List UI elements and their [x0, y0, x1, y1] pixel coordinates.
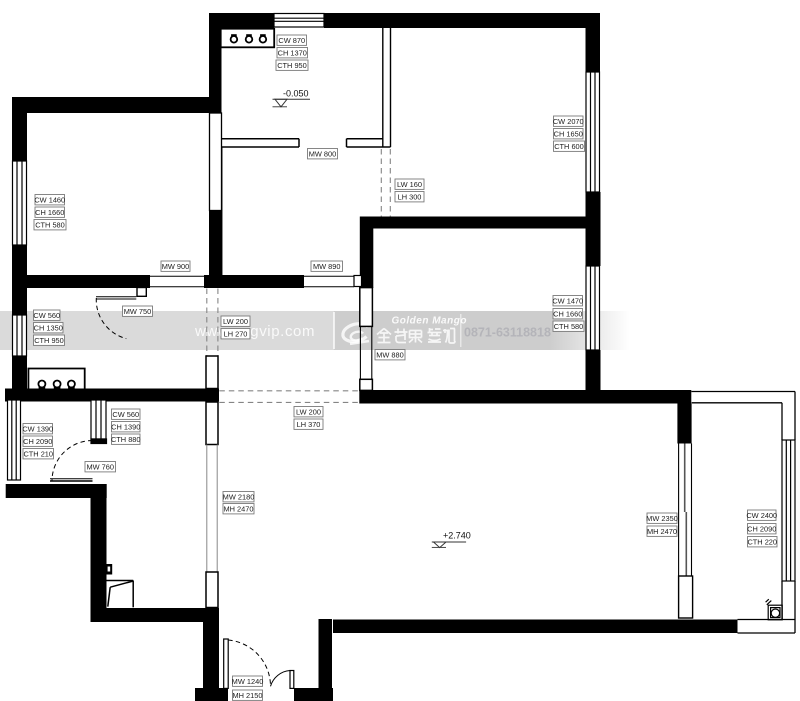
svg-text:CH 2090: CH 2090: [747, 525, 776, 534]
svg-text:MW 2180: MW 2180: [223, 493, 255, 502]
svg-text:CTH 600: CTH 600: [554, 142, 584, 151]
svg-text:MH 2470: MH 2470: [224, 505, 254, 514]
svg-text:MW 750: MW 750: [124, 307, 152, 316]
svg-text:CW 560: CW 560: [112, 410, 139, 419]
svg-text:MW 2350: MW 2350: [646, 514, 678, 523]
svg-text:CH 1350: CH 1350: [34, 324, 63, 333]
svg-text:CH 2090: CH 2090: [23, 437, 52, 446]
svg-text:LH 300: LH 300: [398, 193, 422, 202]
svg-text:CH 1370: CH 1370: [278, 49, 307, 58]
svg-text:CH 1390: CH 1390: [111, 423, 140, 432]
svg-text:MH 2470: MH 2470: [647, 527, 677, 536]
svg-text:Golden Mango: Golden Mango: [392, 316, 467, 327]
svg-text:CTH 220: CTH 220: [747, 538, 777, 547]
svg-text:0871-63118818: 0871-63118818: [464, 326, 551, 340]
svg-text:MW 800: MW 800: [309, 150, 337, 159]
svg-text:CTH 580: CTH 580: [35, 221, 65, 230]
svg-text:www.jmgvip.com: www.jmgvip.com: [194, 323, 315, 340]
svg-text:CH 1660: CH 1660: [553, 310, 582, 319]
svg-text:MW 880: MW 880: [376, 351, 404, 360]
svg-text:CTH 950: CTH 950: [277, 61, 307, 70]
svg-text:LW 200: LW 200: [223, 317, 248, 326]
svg-text:CW 1460: CW 1460: [34, 196, 65, 205]
svg-text:MW 900: MW 900: [162, 262, 190, 271]
svg-text:CW 2070: CW 2070: [553, 117, 584, 126]
svg-text:LW 160: LW 160: [397, 180, 422, 189]
svg-text:CW 1470: CW 1470: [552, 297, 583, 306]
svg-text:CW 870: CW 870: [278, 36, 305, 45]
svg-text:CW 2400: CW 2400: [746, 511, 777, 520]
svg-text:CW 560: CW 560: [33, 311, 60, 320]
svg-text:CTH 210: CTH 210: [23, 450, 53, 459]
svg-text:CH 1660: CH 1660: [35, 208, 64, 217]
svg-text:CTH 880: CTH 880: [111, 435, 141, 444]
svg-text:MH 2150: MH 2150: [233, 691, 263, 700]
svg-text:LW 200: LW 200: [296, 408, 321, 417]
svg-text:+2.740: +2.740: [443, 531, 471, 541]
svg-text:MW 760: MW 760: [86, 463, 114, 472]
svg-text:MW 890: MW 890: [313, 262, 341, 271]
svg-text:CW 1390: CW 1390: [22, 425, 53, 434]
svg-text:MW 1240: MW 1240: [232, 677, 264, 686]
svg-text:CTH 580: CTH 580: [554, 322, 584, 331]
svg-text:CTH 950: CTH 950: [34, 336, 64, 345]
svg-text:CH 1650: CH 1650: [554, 130, 583, 139]
svg-text:LH 370: LH 370: [297, 420, 321, 429]
svg-text:LH 270: LH 270: [224, 330, 248, 339]
svg-text:-0.050: -0.050: [283, 89, 309, 99]
